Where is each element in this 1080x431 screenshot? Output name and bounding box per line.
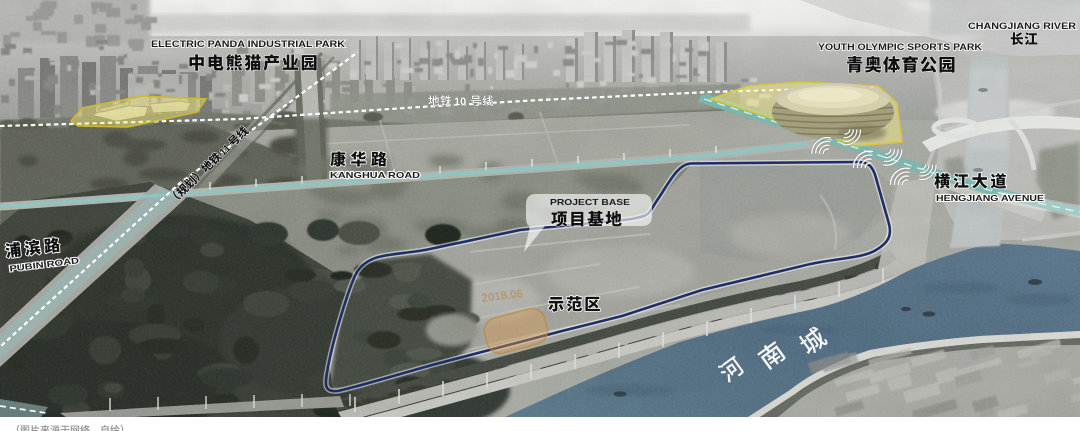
svg-text:KANGHUA ROAD: KANGHUA ROAD: [330, 170, 420, 180]
svg-text:CHANGJIANG RIVER: CHANGJIANG RIVER: [968, 21, 1076, 32]
svg-text:ELECTRIC PANDA INDUSTRIAL PARK: ELECTRIC PANDA INDUSTRIAL PARK: [151, 39, 345, 50]
svg-text:PROJECT BASE: PROJECT BASE: [550, 197, 630, 207]
svg-text:YOUTH OLYMPIC SPORTS PARK: YOUTH OLYMPIC SPORTS PARK: [818, 42, 982, 53]
svg-text:10: 10: [454, 96, 466, 108]
svg-text:HENGJIANG AVENUE: HENGJIANG AVENUE: [936, 193, 1044, 203]
